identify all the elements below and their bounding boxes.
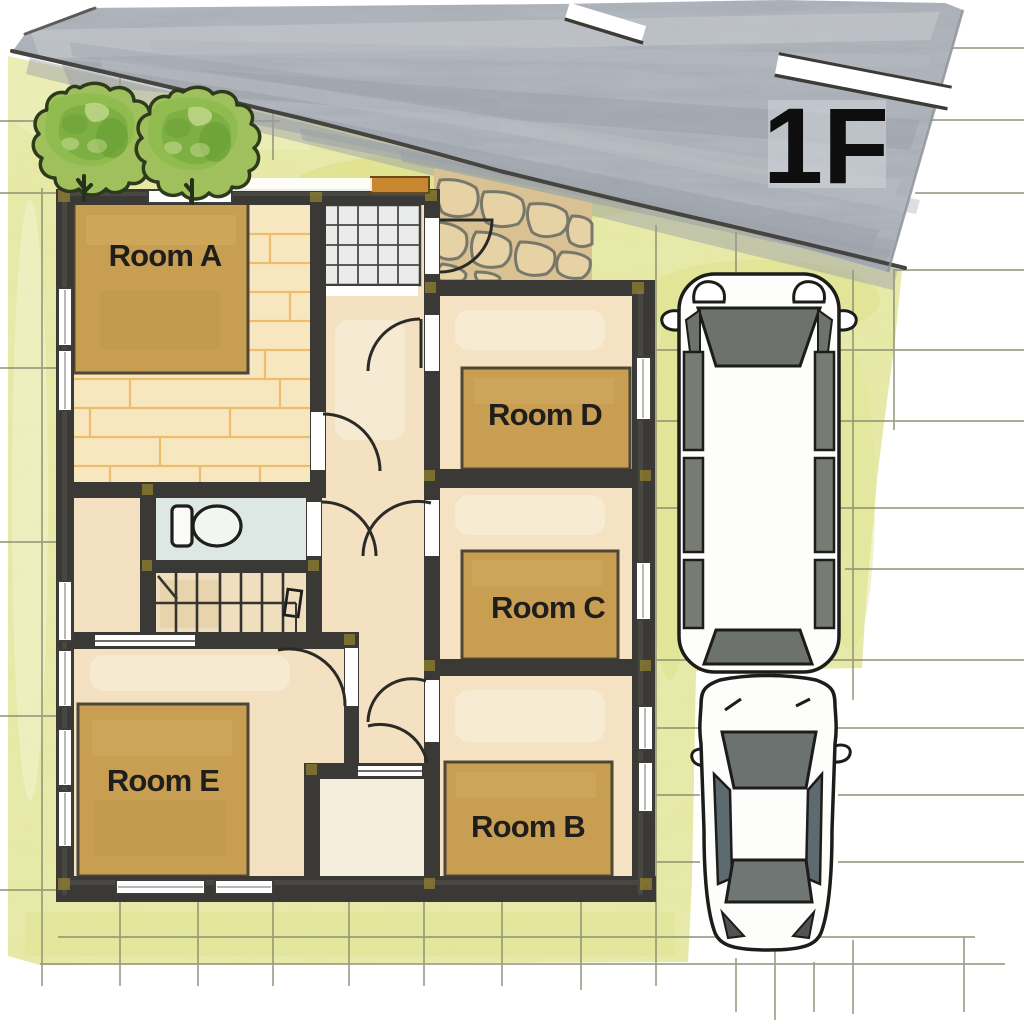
svg-text:Room E: Room E <box>107 763 219 798</box>
svg-text:Room A: Room A <box>109 238 222 273</box>
svg-text:1F: 1F <box>763 85 889 206</box>
svg-text:Room D: Room D <box>488 397 602 432</box>
svg-text:Room C: Room C <box>491 590 605 625</box>
svg-text:Room B: Room B <box>471 809 585 844</box>
